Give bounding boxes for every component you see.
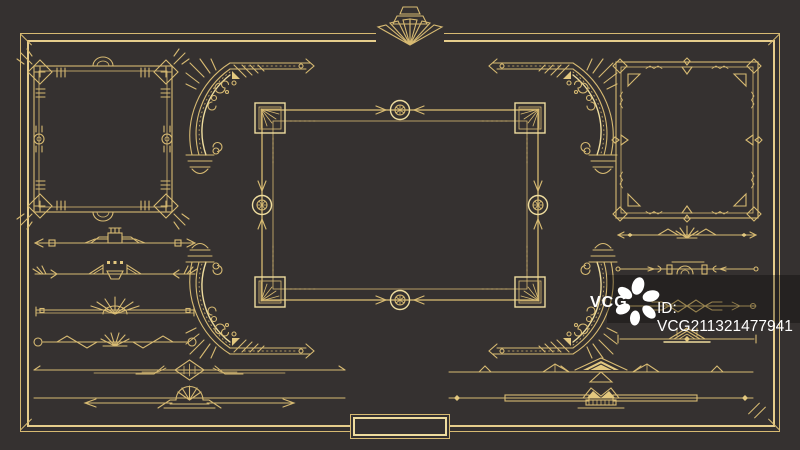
vcg-pinwheel-icon (615, 276, 661, 326)
triangle-accent-frame (612, 58, 762, 222)
rounded-corner-bracket-top-left (184, 57, 314, 177)
rounded-corner-bracket-top-right (489, 57, 619, 177)
empty-nameplate (350, 414, 450, 439)
watermark-id: ID: VCG211321477941 (657, 300, 800, 336)
nameplate-inner-border (353, 417, 447, 436)
art-deco-ornament-sheet: VCG ID: VCG211321477941 (0, 0, 800, 450)
rounded-corner-bracket-bottom-left (184, 240, 314, 360)
deco-fan-crest-icon (376, 3, 444, 47)
ornate-corner-frame (28, 56, 178, 222)
